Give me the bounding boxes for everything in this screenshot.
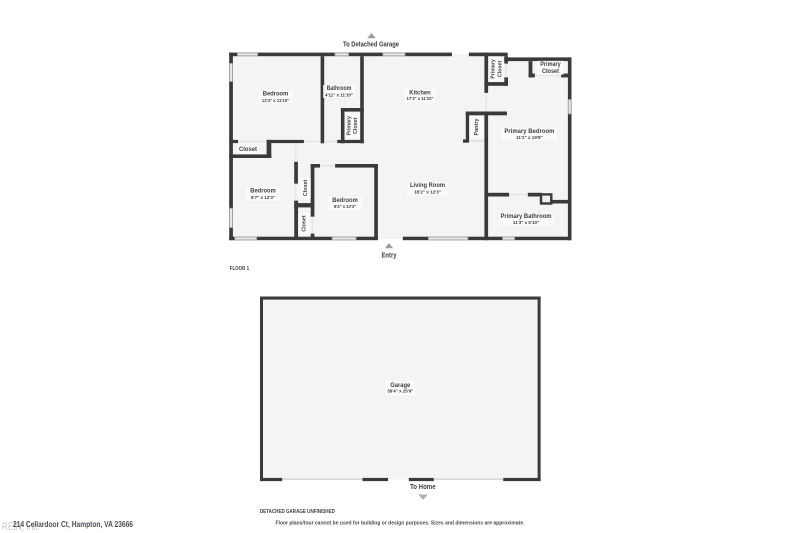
svg-text:18'2" x 12'3": 18'2" x 12'3" <box>414 189 441 195</box>
svg-text:8'7" x 12'3": 8'7" x 12'3" <box>251 195 275 201</box>
svg-text:38'4" x 25'9": 38'4" x 25'9" <box>387 389 413 395</box>
svg-text:11'2" x 19'8": 11'2" x 19'8" <box>516 135 543 141</box>
svg-text:Bedroom: Bedroom <box>263 90 289 97</box>
svg-text:4'11" x 11'10": 4'11" x 11'10" <box>325 92 353 98</box>
svg-text:FLOOR 1: FLOOR 1 <box>230 266 250 272</box>
svg-text:214 Cellardoor Ct, Hampton, VA: 214 Cellardoor Ct, Hampton, VA 23666 <box>13 519 133 529</box>
svg-text:Closet: Closet <box>239 146 258 153</box>
svg-text:Closet: Closet <box>353 117 359 134</box>
svg-text:12'4" x 11'10": 12'4" x 11'10" <box>262 98 289 104</box>
svg-text:Pantry: Pantry <box>474 118 480 136</box>
svg-text:11'3" x 5'10": 11'3" x 5'10" <box>513 220 539 226</box>
svg-text:DETACHED GARAGE UNFINISHED: DETACHED GARAGE UNFINISHED <box>260 509 335 515</box>
svg-text:Living Room: Living Room <box>410 182 445 189</box>
svg-text:Primary: Primary <box>346 115 352 135</box>
svg-text:Primary Bedroom: Primary Bedroom <box>504 128 554 135</box>
svg-text:To Home: To Home <box>410 484 436 491</box>
svg-text:Closet: Closet <box>542 69 559 75</box>
svg-text:Floor plans/tour cannot be use: Floor plans/tour cannot be used for buil… <box>276 520 525 526</box>
svg-text:Closet: Closet <box>497 61 503 78</box>
svg-text:Primary: Primary <box>540 62 561 68</box>
svg-text:Closet: Closet <box>301 215 307 232</box>
svg-text:Bedroom: Bedroom <box>332 197 358 204</box>
svg-text:Garage: Garage <box>390 382 410 389</box>
svg-text:17'3" x 11'10": 17'3" x 11'10" <box>407 96 434 102</box>
svg-text:Primary: Primary <box>491 58 497 78</box>
svg-text:Kitchen: Kitchen <box>409 89 431 96</box>
svg-text:Entry: Entry <box>382 252 397 259</box>
svg-text:Closet: Closet <box>303 180 309 197</box>
svg-text:8'4" x 10'3": 8'4" x 10'3" <box>334 204 356 210</box>
svg-text:Primary Bathroom: Primary Bathroom <box>501 213 552 220</box>
svg-text:Bedroom: Bedroom <box>250 187 276 194</box>
svg-text:To Detached Garage: To Detached Garage <box>343 42 399 49</box>
svg-text:Bathroom: Bathroom <box>327 85 352 92</box>
